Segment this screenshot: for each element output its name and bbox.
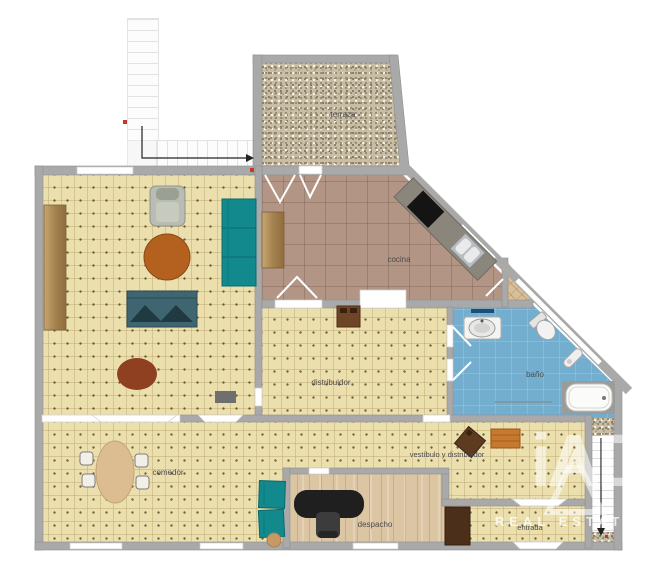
kitchen-table bbox=[262, 212, 284, 268]
arrow-head-down bbox=[597, 528, 605, 536]
label-comedor: comedor bbox=[152, 468, 183, 477]
door-bath-1 bbox=[447, 325, 453, 347]
bathtub bbox=[562, 381, 615, 414]
armchair bbox=[150, 186, 185, 226]
round-table bbox=[144, 234, 190, 280]
opening-kitchen-wide bbox=[360, 290, 406, 308]
sideboard bbox=[44, 205, 66, 330]
dining-table bbox=[96, 441, 134, 503]
label-cocina: cocina bbox=[387, 255, 411, 264]
swing-bath-2 bbox=[453, 362, 471, 380]
dining-area bbox=[80, 441, 149, 503]
window-bottom-1 bbox=[70, 543, 122, 549]
label-terraza: terraza bbox=[331, 110, 356, 119]
door-entrada-bottom bbox=[513, 542, 563, 549]
office-chair bbox=[316, 512, 340, 538]
label-vestibulo: vestíbulo y distribuidor bbox=[410, 450, 485, 459]
swing-triangle bbox=[486, 279, 503, 296]
window-office bbox=[353, 543, 398, 549]
marker-red-1 bbox=[123, 120, 127, 124]
label-distribuidor: distribuidor bbox=[311, 378, 350, 387]
swing-kitchen-bottom bbox=[277, 277, 317, 298]
bath-accessory bbox=[562, 347, 584, 369]
dining-chair bbox=[135, 454, 148, 467]
dining-chair bbox=[136, 476, 149, 489]
oval-rug bbox=[117, 358, 157, 390]
wall-terrace-top bbox=[253, 55, 396, 63]
kitchen-counter bbox=[394, 178, 497, 281]
slate-sofa bbox=[127, 291, 197, 327]
swing-terrace-door bbox=[300, 175, 321, 197]
wall-office-top bbox=[283, 468, 449, 474]
hall-rug bbox=[491, 429, 520, 448]
door-office bbox=[309, 468, 329, 474]
wall-left bbox=[35, 166, 43, 550]
wall-terrace-left bbox=[253, 55, 262, 175]
door-kitchen-hall bbox=[275, 300, 322, 308]
watermark-logo: iAD bbox=[531, 424, 646, 498]
door-living-hall bbox=[255, 388, 262, 406]
dining-chair bbox=[82, 474, 95, 487]
teal-chairs bbox=[258, 481, 285, 538]
door-hall-vestibulo bbox=[423, 415, 450, 422]
door-bath-2 bbox=[447, 359, 453, 381]
swing-kitchen-top-left bbox=[265, 175, 295, 202]
bath-vanity bbox=[464, 317, 501, 339]
watermark-text: REAL ESTATE bbox=[495, 514, 638, 529]
marker-red-2 bbox=[250, 168, 254, 172]
window-bottom-2 bbox=[200, 543, 243, 549]
bath-shelf bbox=[471, 309, 494, 313]
marker-red-3 bbox=[605, 535, 608, 538]
door-swings bbox=[265, 175, 503, 380]
entry-cabinet bbox=[445, 507, 470, 545]
doormat bbox=[215, 391, 236, 403]
teal-sofa bbox=[222, 199, 256, 286]
console-table bbox=[337, 306, 360, 327]
wall-terrace-right bbox=[389, 55, 409, 166]
opening-trapezoid-2 bbox=[198, 415, 243, 422]
label-despacho: despacho bbox=[358, 520, 393, 529]
opening-trapezoid-1 bbox=[92, 415, 177, 422]
label-bano: baño bbox=[526, 370, 544, 379]
floor-plan: terraza cocina distribuidor baño comedor… bbox=[0, 0, 654, 566]
dining-chair bbox=[80, 452, 93, 465]
upper-stairs-arrow bbox=[142, 126, 246, 158]
stool bbox=[267, 533, 281, 547]
window-living-top bbox=[77, 167, 133, 174]
door-terrace bbox=[299, 166, 322, 174]
